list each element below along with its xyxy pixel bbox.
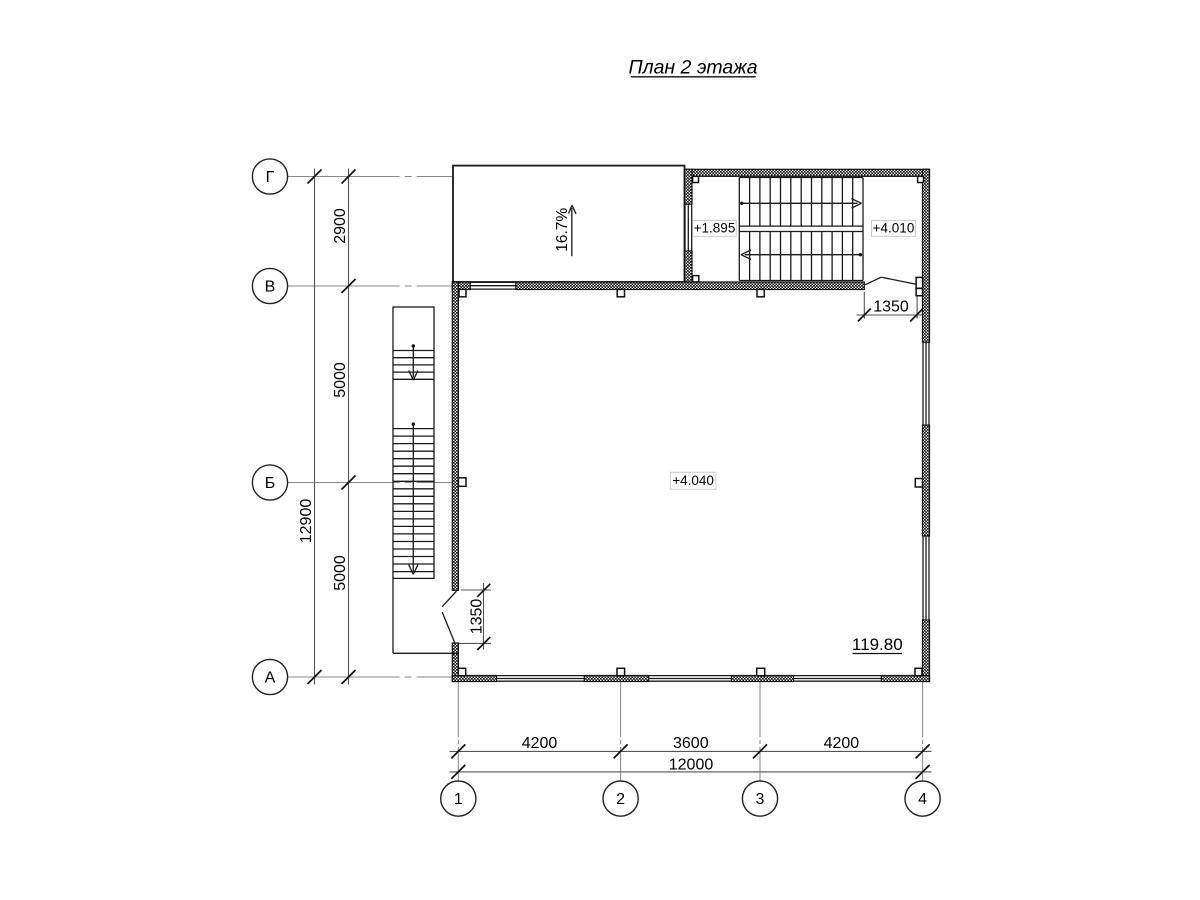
svg-text:+4.010: +4.010: [873, 220, 915, 235]
svg-text:А: А: [265, 670, 276, 687]
svg-text:2900: 2900: [332, 208, 349, 244]
svg-text:5000: 5000: [332, 362, 349, 398]
svg-text:3: 3: [756, 791, 765, 808]
svg-text:12000: 12000: [669, 757, 714, 774]
svg-text:В: В: [265, 279, 276, 296]
svg-text:Б: Б: [265, 475, 276, 492]
svg-text:4200: 4200: [824, 735, 860, 752]
svg-text:16.7%: 16.7%: [554, 208, 571, 252]
svg-text:119.80: 119.80: [852, 635, 903, 654]
svg-text:Г: Г: [266, 169, 275, 186]
svg-text:1350: 1350: [873, 299, 909, 316]
svg-text:1: 1: [454, 791, 463, 808]
svg-text:План 2 этажа: План 2 этажа: [628, 57, 757, 79]
svg-text:2: 2: [616, 791, 625, 808]
svg-text:5000: 5000: [332, 555, 349, 591]
svg-text:12900: 12900: [298, 499, 315, 544]
svg-text:4200: 4200: [522, 735, 558, 752]
svg-text:3600: 3600: [673, 735, 709, 752]
svg-text:4: 4: [918, 791, 927, 808]
svg-text:+1.895: +1.895: [694, 220, 736, 235]
svg-text:1350: 1350: [468, 599, 485, 635]
svg-text:+4.040: +4.040: [672, 473, 714, 488]
